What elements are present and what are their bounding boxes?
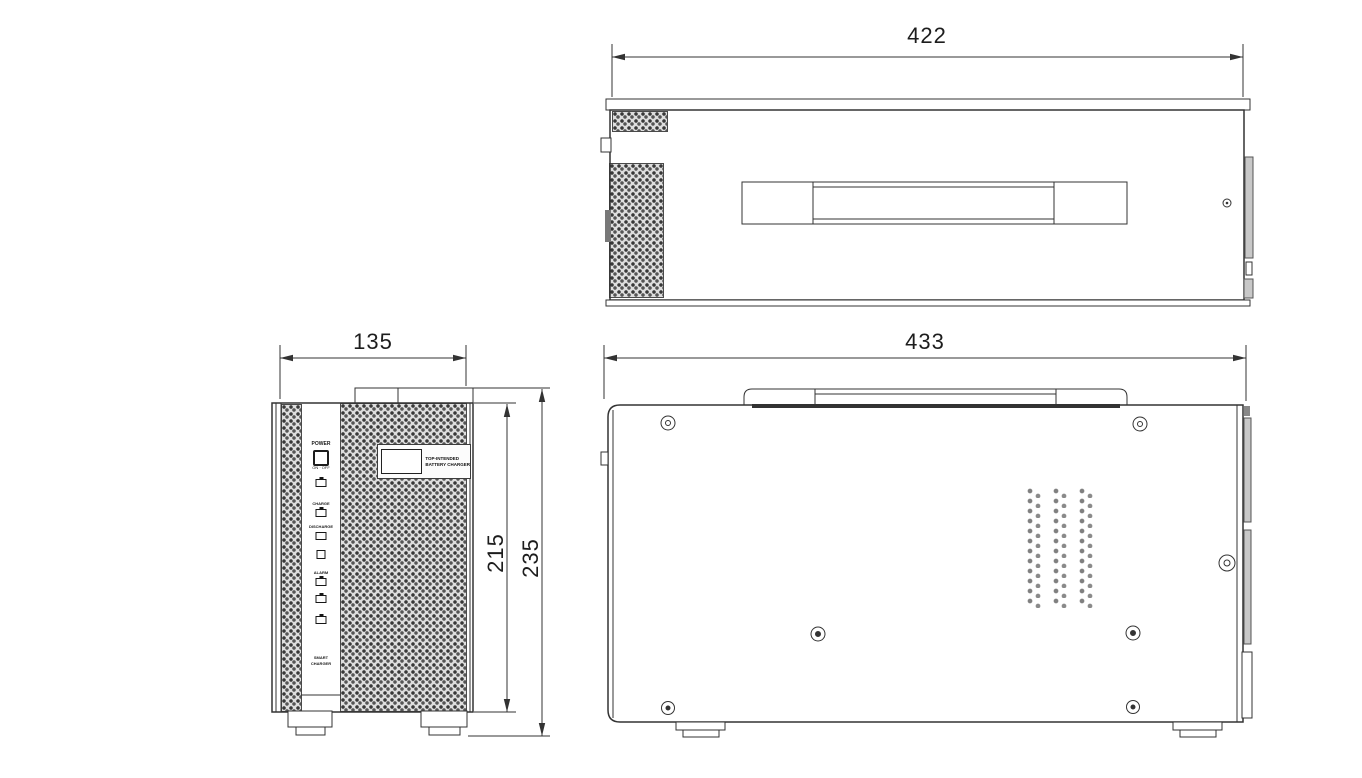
front-view-foot-left-top <box>288 711 332 727</box>
top-view-vent-strip <box>613 112 667 131</box>
status-led-icon-2 <box>316 616 327 624</box>
nameplate-window <box>381 449 422 474</box>
side-screw-mid-left <box>811 627 825 641</box>
side-view-handle-outline <box>744 389 1127 405</box>
battery-icon <box>316 479 327 487</box>
top-view-screw-center <box>1226 202 1229 205</box>
charge-led-icon <box>316 509 327 517</box>
charge-label: CHARGE <box>312 501 329 506</box>
side-view-rear-nub <box>1244 406 1250 416</box>
side-screw-mid-right <box>1126 626 1140 640</box>
top-view-vent-panel <box>610 164 663 297</box>
dim-433-arrow-right <box>1233 355 1246 361</box>
side-view-foot-left-bottom <box>683 730 719 737</box>
front-view-foot-left-bottom <box>296 727 325 735</box>
drawing-canvas: 422 135 433 215 235 POWER ON · OFF CHARG… <box>0 0 1362 778</box>
dim-215-arrow-top <box>504 404 510 417</box>
dim-422-arrow-right <box>1230 54 1243 60</box>
top-view-right-clip <box>1246 262 1252 275</box>
dim-433-arrow-left <box>604 355 617 361</box>
dim-433-label: 433 <box>905 329 945 355</box>
side-screw-bottom-right <box>1127 701 1140 714</box>
side-view-rear-rail-bottom <box>1244 530 1251 644</box>
panel-footer-line2: CHARGER <box>311 661 331 666</box>
side-view-foot-left-top <box>676 722 725 730</box>
top-view-right-bracket <box>1244 279 1253 298</box>
full-led-icon <box>317 550 326 559</box>
side-view-handle-recess <box>752 404 1120 408</box>
alarm-label: ALARM <box>314 570 328 575</box>
side-screw-rear-edge <box>1219 555 1235 571</box>
side-screw-top-right <box>1133 417 1147 431</box>
side-view-left-tab <box>601 452 608 465</box>
dim-235-label: 235 <box>518 538 544 578</box>
front-view-handle <box>355 388 473 403</box>
side-view-vent-holes <box>1026 488 1102 608</box>
nameplate-line2: BATTERY CHARGER <box>425 462 470 468</box>
power-onoff-label: ON · OFF <box>312 465 330 470</box>
discharge-label: DISCHARGE <box>309 524 333 529</box>
side-screw-bottom-left-center <box>666 706 670 710</box>
alarm-led-icon <box>316 578 327 586</box>
top-view-body-outline <box>610 110 1244 300</box>
dim-422-label: 422 <box>907 23 947 49</box>
dim-135-label: 135 <box>353 329 393 355</box>
side-view-rear-rail-top <box>1244 418 1251 522</box>
dim-422-arrow-left <box>612 54 625 60</box>
front-view-foot-right-bottom <box>429 727 460 735</box>
dim-135-arrow-left <box>280 355 293 361</box>
side-view <box>601 345 1252 737</box>
side-screw-mid-left-center <box>816 632 821 637</box>
nameplate-text: TOP-INTENDED BATTERY CHARGER <box>425 456 470 468</box>
discharge-led-icon <box>316 532 327 540</box>
panel-footer-line1: SMART <box>314 655 328 660</box>
top-view-screw <box>1223 199 1231 207</box>
side-screw-mid-right-center <box>1131 631 1136 636</box>
top-view-handle-outline <box>742 182 1127 224</box>
dim-235-arrow-bottom <box>539 723 545 736</box>
side-screw-top-left <box>661 416 675 430</box>
status-led-icon-1 <box>316 595 327 603</box>
dim-135-arrow-right <box>453 355 466 361</box>
dim-215-arrow-bottom <box>504 699 510 712</box>
nameplate-label: TOP-INTENDED BATTERY CHARGER <box>377 444 471 479</box>
power-label: POWER <box>312 441 331 447</box>
top-view-left-tab <box>601 138 611 152</box>
side-view-body-outline <box>608 405 1243 722</box>
side-screw-rear-edge-center <box>1224 560 1230 566</box>
top-view-right-rail <box>1245 157 1253 258</box>
side-view-rear-bracket <box>1242 652 1252 718</box>
front-view-foot-right-top <box>421 711 467 727</box>
side-view-foot-right-bottom <box>1180 730 1216 737</box>
top-view <box>601 44 1253 306</box>
dim-215-label: 215 <box>483 533 509 573</box>
front-control-panel: POWER ON · OFF CHARGE DISCHARGE ALARM SM… <box>301 403 341 712</box>
front-view-left-vent-column <box>282 405 301 711</box>
side-view-foot-right-top <box>1173 722 1222 730</box>
power-button[interactable] <box>313 450 329 466</box>
side-screw-bottom-right-center <box>1131 705 1135 709</box>
side-screw-bottom-left <box>662 702 675 715</box>
top-view-front-band <box>606 99 1250 110</box>
dim-235-arrow-top <box>539 389 545 402</box>
linework-layer <box>0 0 1362 778</box>
side-screw-top-left-center <box>666 421 671 426</box>
top-view-rear-band <box>606 300 1250 306</box>
side-screw-top-right-center <box>1138 422 1143 427</box>
